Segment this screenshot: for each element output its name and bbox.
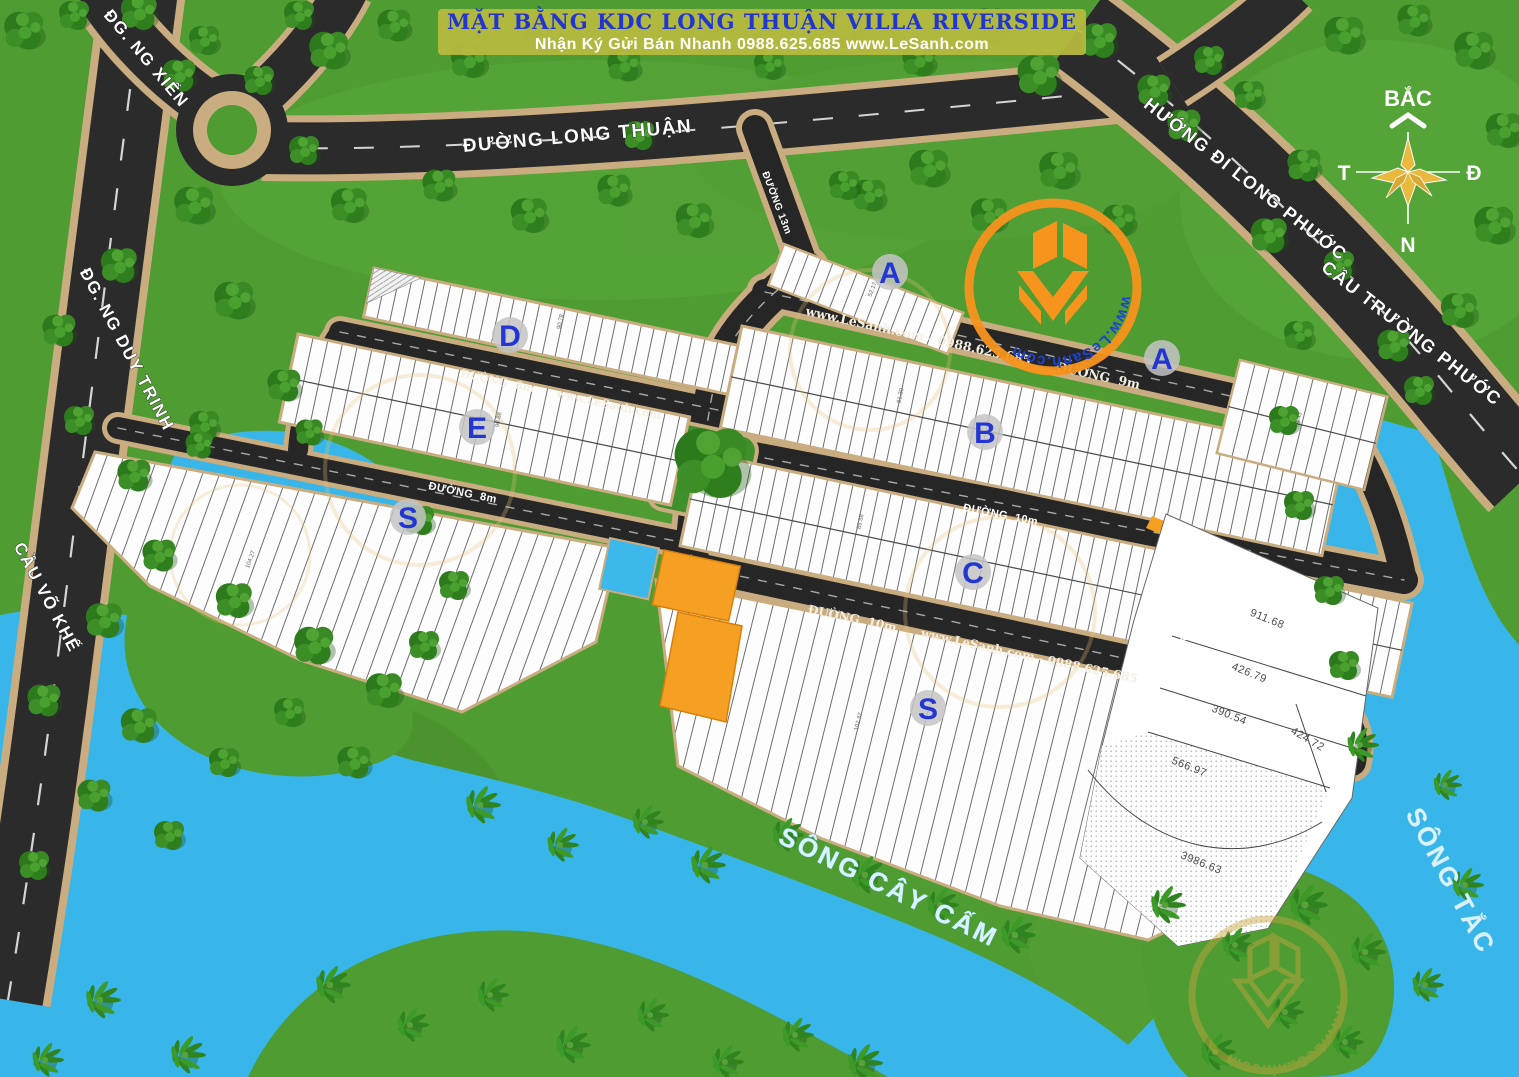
tree-icon bbox=[274, 698, 306, 727]
tree-icon bbox=[209, 748, 241, 777]
compass-east: Đ bbox=[1466, 162, 1481, 185]
tree-icon bbox=[1251, 218, 1289, 253]
tree-icon bbox=[189, 26, 221, 55]
pool-parcel bbox=[599, 538, 659, 599]
tree-icon bbox=[337, 747, 372, 779]
tree-icon bbox=[121, 708, 159, 743]
tree-icon bbox=[154, 821, 186, 850]
tree-icon bbox=[754, 51, 786, 80]
tree-icon bbox=[829, 171, 861, 200]
tree-icon bbox=[64, 406, 96, 435]
badge-block-s-left: S bbox=[390, 499, 426, 535]
tree-icon bbox=[1269, 406, 1301, 435]
svg-text:D: D bbox=[499, 320, 521, 353]
tree-icon bbox=[214, 282, 256, 320]
badge-block-s-bottom: S bbox=[910, 690, 946, 726]
tree-icon bbox=[439, 571, 471, 600]
tree-icon bbox=[101, 248, 139, 283]
svg-text:A: A bbox=[879, 257, 901, 290]
tree-icon bbox=[1474, 207, 1516, 245]
tree-icon bbox=[216, 583, 254, 618]
tree-icon bbox=[377, 10, 412, 42]
svg-text:C: C bbox=[962, 557, 984, 590]
tree-icon bbox=[244, 66, 276, 95]
tree-icon bbox=[59, 1, 91, 30]
tree-icon bbox=[1039, 152, 1081, 190]
banner-title: MẶT BẰNG KDC LONG THUẬN VILLA RIVERSIDE bbox=[447, 7, 1077, 34]
tree-icon bbox=[366, 673, 404, 708]
svg-text:S: S bbox=[918, 693, 938, 726]
tree-icon bbox=[1329, 651, 1361, 680]
tree-icon bbox=[1081, 23, 1119, 58]
tree-icon bbox=[676, 203, 714, 238]
title-banner: MẶT BẰNG KDC LONG THUẬN VILLA RIVERSIDE … bbox=[438, 7, 1086, 55]
tree-icon bbox=[77, 780, 112, 812]
tree-icon bbox=[284, 1, 316, 30]
tree-icon bbox=[294, 627, 336, 665]
tree-icon bbox=[1018, 55, 1063, 96]
tree-icon bbox=[86, 603, 124, 638]
banner-subtitle: Nhận Ký Gửi Bán Nhanh 0988.625.685 www.L… bbox=[535, 36, 989, 53]
badge-block-a-right: A bbox=[1144, 340, 1180, 376]
tree-icon bbox=[1441, 293, 1479, 328]
tree-icon bbox=[1284, 491, 1316, 520]
badge-block-b: B bbox=[967, 414, 1003, 450]
tree-icon bbox=[1397, 5, 1432, 37]
svg-text:B: B bbox=[974, 417, 996, 450]
svg-text:S: S bbox=[398, 502, 418, 535]
tree-icon bbox=[174, 187, 216, 225]
tree-icon bbox=[186, 432, 215, 458]
badge-block-a-top: A bbox=[872, 254, 908, 290]
tree-icon bbox=[422, 170, 457, 202]
tree-icon bbox=[409, 631, 441, 660]
svg-text:A: A bbox=[1151, 343, 1173, 376]
tree-icon bbox=[4, 12, 46, 50]
tree-icon bbox=[27, 685, 62, 717]
site-plan-map: 911.68 426.79 390.54 424.72 566.97 3986.… bbox=[0, 0, 1519, 1077]
tree-icon bbox=[597, 175, 632, 207]
tree-icon bbox=[1284, 321, 1316, 350]
tree-icon bbox=[511, 198, 549, 233]
tree-icon bbox=[1194, 46, 1226, 75]
badge-block-d: D bbox=[492, 317, 528, 353]
tree-icon bbox=[331, 188, 369, 223]
tree-icon bbox=[289, 136, 321, 165]
tree-icon bbox=[117, 460, 152, 492]
compass-west: T bbox=[1338, 162, 1351, 185]
tree-icon bbox=[1454, 32, 1496, 70]
tree-icon bbox=[309, 32, 351, 70]
badge-block-c: C bbox=[955, 554, 991, 590]
svg-text:E: E bbox=[467, 412, 487, 445]
park-big-tree-icon bbox=[675, 428, 752, 498]
tree-icon bbox=[1404, 376, 1436, 405]
tree-icon bbox=[1314, 576, 1346, 605]
tree-icon bbox=[142, 540, 177, 572]
tree-icon bbox=[1287, 150, 1322, 182]
tree-icon bbox=[42, 315, 77, 347]
badge-block-e: E bbox=[459, 409, 495, 445]
tree-icon bbox=[1324, 17, 1366, 55]
tree-icon bbox=[1234, 81, 1266, 110]
tree-icon bbox=[909, 150, 951, 188]
tree-icon bbox=[267, 370, 302, 402]
tree-icon bbox=[296, 419, 325, 445]
tree-icon bbox=[19, 851, 51, 880]
compass-north: BẮC bbox=[1384, 86, 1432, 111]
tree-icon bbox=[1486, 113, 1519, 148]
compass-south: N bbox=[1400, 234, 1415, 257]
map-canvas: 911.68 426.79 390.54 424.72 566.97 3986.… bbox=[0, 0, 1519, 1077]
